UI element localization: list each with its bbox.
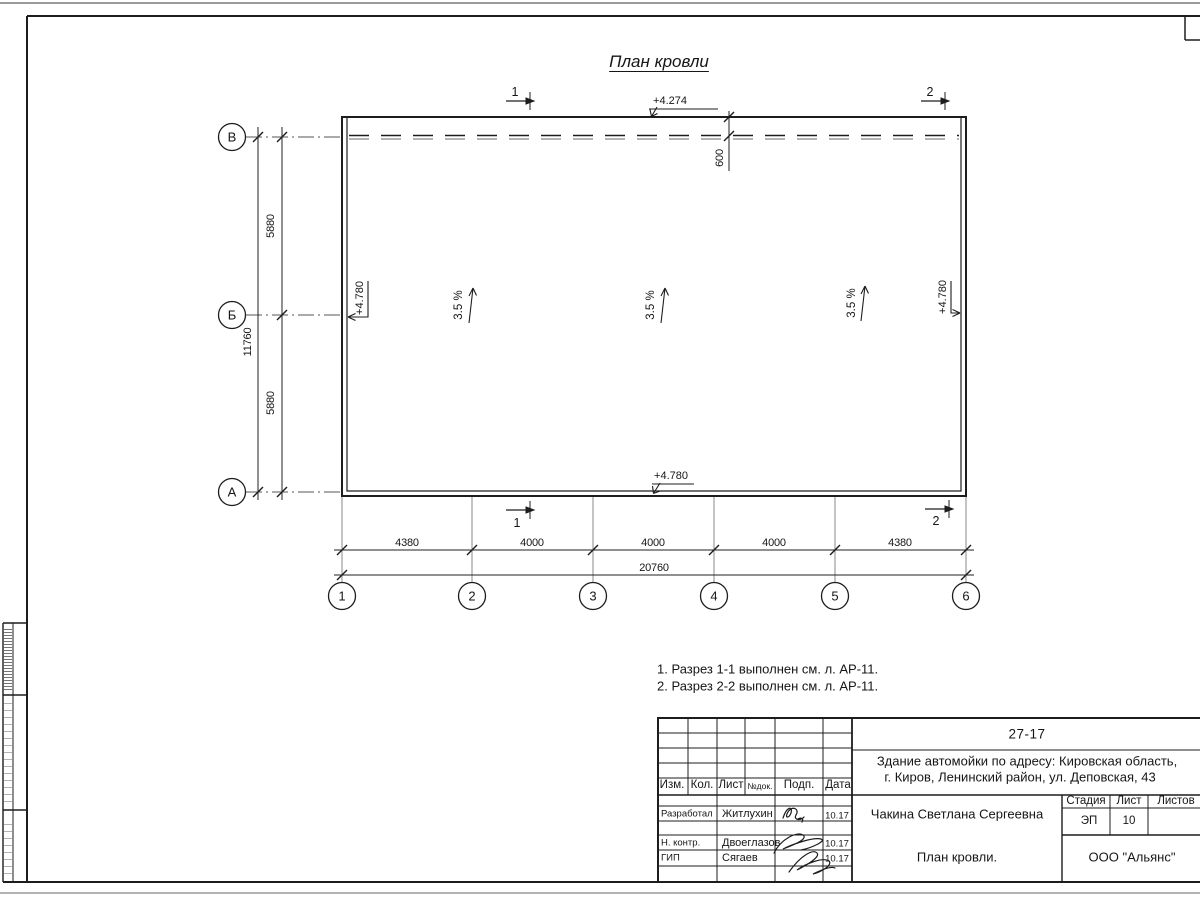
left-margin-text-smudge: [4, 818, 12, 874]
slope-label: 3.5 %: [453, 290, 465, 319]
dim-left-segment: 5880: [265, 214, 277, 238]
drawing-sheet: План кровли +4.274 +4.780 +4.780 +4.780 …: [0, 0, 1200, 900]
axis-label-row: В: [228, 130, 237, 145]
dim-left-total: 11760: [242, 328, 254, 357]
axis-label-column: 1: [338, 589, 345, 604]
section-label-2-bottom: 2: [933, 514, 940, 528]
left-margin-text-smudge: [4, 702, 12, 802]
section-label-1-bottom: 1: [514, 516, 521, 530]
section-label-2-top: 2: [927, 85, 934, 99]
axis-lines: [246, 137, 342, 492]
title-block-sheet-label: Лист: [1117, 795, 1142, 807]
title-block-role: ГИП: [661, 853, 680, 864]
title-block-project-code: 27-17: [1008, 727, 1045, 742]
axis-label-row: Б: [228, 308, 237, 323]
note-line: 2. Разрез 2-2 выполнен см. л. АР-11.: [657, 679, 878, 694]
title-block-sheet-title: План кровли.: [917, 850, 997, 865]
dim-canopy-offset: 600: [714, 149, 726, 167]
axis-bubbles: [219, 124, 980, 610]
dim-bottom-segment: 4000: [762, 537, 786, 549]
axis-label-column: 3: [589, 589, 596, 604]
dimension-lines: [258, 111, 974, 575]
left-margin-text-smudge: [4, 628, 12, 690]
title-block-name: Сягаев: [722, 852, 758, 864]
dim-bottom-segment: 4000: [641, 537, 665, 549]
title-block-company: ООО "Альянс": [1089, 850, 1176, 865]
dimension-ticks: [253, 112, 971, 580]
title-block-author: Чакина Светлана Сергеевна: [871, 807, 1043, 822]
title-block-address-line2: г. Киров, Ленинский район, ул. Деповская…: [884, 770, 1155, 785]
title-block-col-podp: Подп.: [784, 779, 815, 791]
title-block-col-list: Лист: [719, 779, 744, 791]
title-block-sheet-value: 10: [1123, 815, 1136, 827]
title-block-col-ndoc: №док.: [748, 781, 773, 791]
title-block-name: Двоеглазов: [722, 837, 780, 849]
dim-bottom-segment: 4380: [395, 537, 419, 549]
title-block-role: Разработал: [661, 809, 713, 820]
signature-zhitlukhin: [783, 808, 804, 822]
title-block-col-kol: Кол.: [691, 779, 714, 791]
dim-bottom-segment: 4000: [520, 537, 544, 549]
dim-left-segment: 5880: [265, 391, 277, 415]
elevation-roof-right: +4.780: [937, 280, 949, 314]
title-block-date: 10.17: [825, 854, 849, 865]
title-block-stage-value: ЭП: [1081, 815, 1098, 827]
dim-bottom-total: 20760: [639, 562, 669, 574]
section-label-1-top: 1: [512, 85, 519, 99]
title-block-sheets-label: Листов: [1157, 795, 1194, 807]
title-block-date: 10.17: [825, 839, 849, 850]
elevation-roof-left: +4.780: [354, 281, 366, 315]
title-block-col-izm: Изм.: [660, 779, 685, 791]
title-block-col-data: Дата: [825, 779, 850, 791]
slope-arrows: [469, 286, 869, 323]
elevation-canopy: +4.274: [653, 95, 687, 107]
elevation-roof-bottom: +4.780: [654, 470, 688, 482]
axis-label-row: А: [228, 485, 237, 500]
dim-bottom-segment: 4380: [888, 537, 912, 549]
title-block-date: 10.17: [825, 811, 849, 822]
slope-label: 3.5 %: [846, 288, 858, 317]
axis-label-column: 4: [710, 589, 717, 604]
axis-label-column: 5: [831, 589, 838, 604]
title-block-name: Житлухин: [722, 808, 773, 820]
title-block-address-line1: Здание автомойки по адресу: Кировская об…: [877, 754, 1177, 769]
drawing-title: План кровли: [609, 52, 709, 72]
title-block-role: Н. контр.: [661, 838, 700, 849]
title-block-stage-label: Стадия: [1066, 795, 1105, 807]
axis-label-column: 2: [468, 589, 475, 604]
axis-label-column: 6: [962, 589, 969, 604]
slope-label: 3.5 %: [645, 290, 657, 319]
note-line: 1. Разрез 1-1 выполнен см. л. АР-11.: [657, 662, 878, 677]
